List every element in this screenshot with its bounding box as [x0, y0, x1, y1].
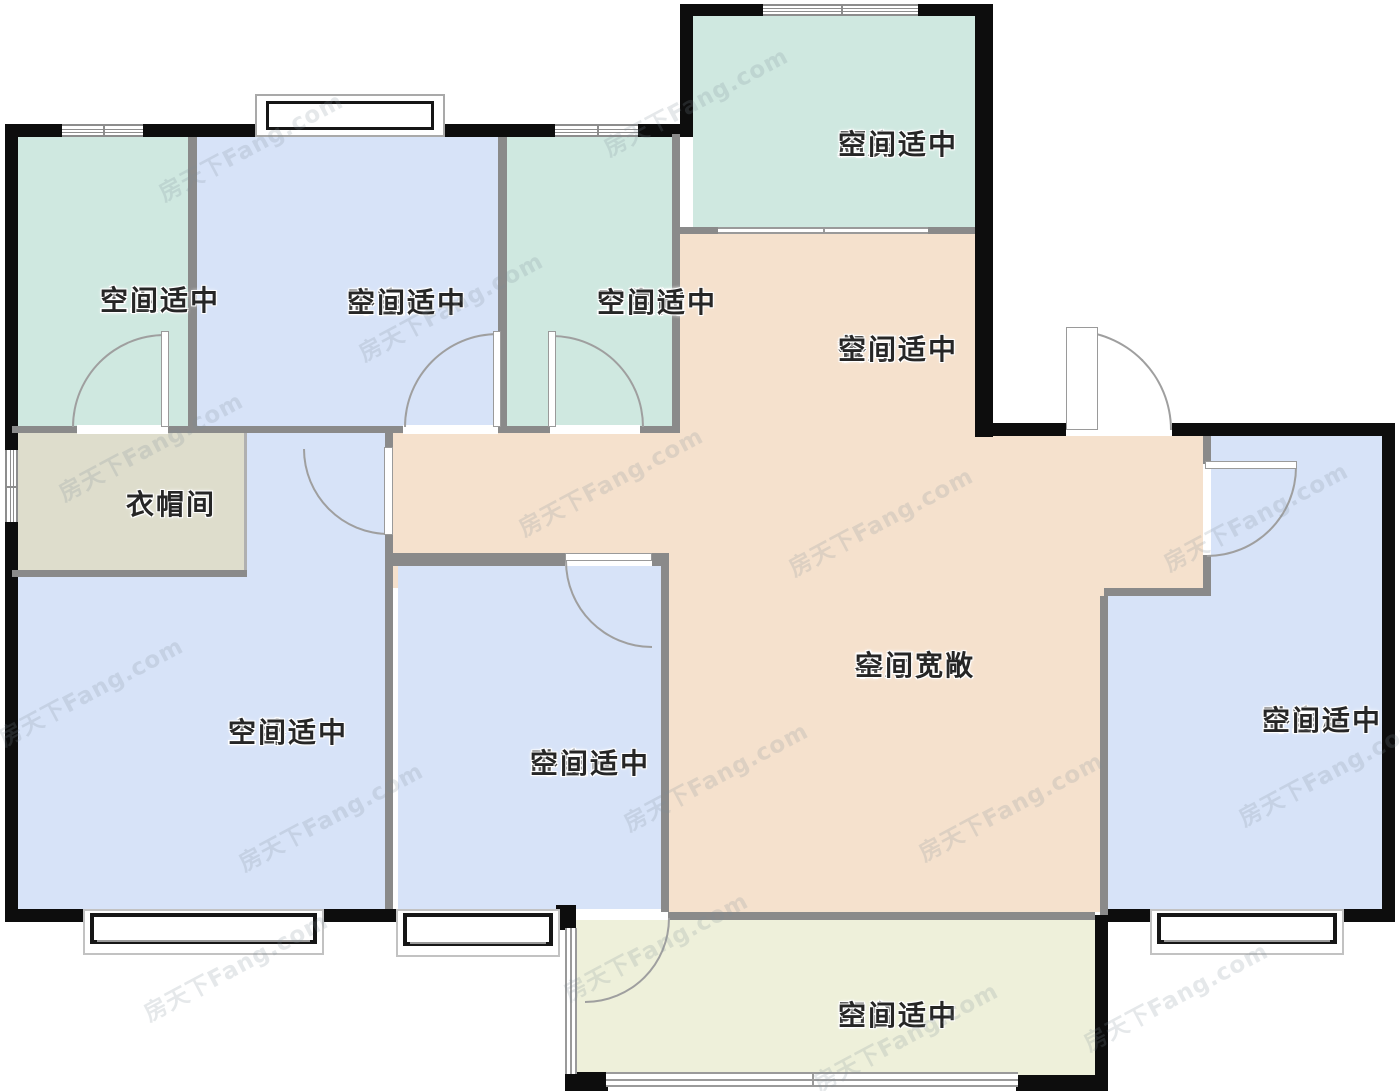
- wall-entry-right: [1172, 423, 1395, 436]
- wall-right: [1382, 423, 1395, 922]
- partition-kitchen-bottom-l: [676, 227, 718, 234]
- partition-cloakroom-bottom: [12, 570, 247, 577]
- partition-bedrooma-step-h: [1104, 588, 1211, 596]
- room-living: [669, 566, 1104, 912]
- wall-kitchen-top-1: [680, 4, 763, 16]
- door-leaf-hallway: [384, 447, 393, 535]
- room-note: 空间适中: [838, 334, 958, 366]
- wall-bottom-left-2: [322, 909, 398, 922]
- door-leaf-bedroom-b: [565, 553, 652, 561]
- window-master-bath: [62, 124, 143, 137]
- partition-bathroom-bottom-l: [507, 426, 550, 433]
- door-leaf-bedroom-c: [493, 331, 501, 427]
- room-dining: [680, 228, 975, 436]
- partition-cloakroom-right: [244, 433, 247, 570]
- window-master-bedroom: [83, 909, 324, 955]
- room-name: 衣帽间: [126, 489, 216, 521]
- partition-living-balcony: [668, 912, 1095, 920]
- window-cloakroom: [5, 450, 18, 522]
- balcony-glass-left: [565, 928, 577, 1074]
- wall-top-2: [143, 124, 257, 137]
- room-note: 空间适中: [100, 285, 220, 317]
- room-note: 空间适中: [228, 717, 348, 749]
- room-note: 空间适中: [1262, 705, 1382, 737]
- balcony-glass-bottom: [606, 1072, 1018, 1087]
- room-note: 空间适中: [347, 287, 467, 319]
- partition-living-bedrooma: [1100, 596, 1108, 915]
- wall-kitchen-right: [975, 4, 993, 437]
- wall-bottom-left-1: [5, 909, 85, 922]
- wall-entry-left: [993, 423, 1066, 436]
- partition-hall-right-bottom: [385, 533, 393, 566]
- wall-top-3: [443, 124, 555, 137]
- floorplan: 主卫 空间适中 卧室C 空间适中 卫生间 空间适中 厨房 空间适中 餐厅 空间适…: [0, 0, 1400, 1091]
- door-leaf-bedroom-a: [1205, 461, 1297, 469]
- window-bedroom-a: [1150, 909, 1344, 955]
- partition-bedrooma-left-top: [1203, 436, 1211, 464]
- wall-bottom-right-1: [1104, 909, 1152, 922]
- room-note: 空间适中: [838, 129, 958, 161]
- door-leaf-entry: [1066, 327, 1098, 430]
- partition-bedroomb-top-r: [652, 553, 669, 566]
- room-note: 空间适中: [838, 1000, 958, 1032]
- wall-left-upper: [5, 124, 18, 450]
- room-kitchen: [693, 16, 975, 228]
- room-note: 空间适中: [597, 287, 717, 319]
- partition-masterbath-bottom-r: [168, 426, 197, 433]
- partition-bedroomc-bottom: [197, 426, 403, 433]
- partition-bedroomb-top-l: [393, 553, 565, 566]
- wall-balcony-corner-bl: [565, 1072, 608, 1091]
- wall-top-1: [5, 124, 62, 137]
- wall-kitchen-left: [680, 4, 693, 134]
- partition-bathroom-bottom-r: [640, 426, 680, 433]
- partition-master-bedroomb: [385, 566, 393, 909]
- room-bedroom-a: [1108, 596, 1382, 909]
- wall-balcony-corner-br: [1016, 1075, 1108, 1091]
- door-leaf-bathroom: [548, 331, 556, 427]
- wall-left-lower: [5, 522, 18, 922]
- room-note: 空间宽敞: [855, 650, 975, 682]
- partition-bedroomb-living: [661, 566, 669, 912]
- room-note: 空间适中: [530, 748, 650, 780]
- door-leaf-master-bath: [161, 331, 169, 427]
- window-bedroom-b: [396, 909, 560, 957]
- bay-window-inner: [266, 101, 434, 130]
- window-bathroom: [555, 124, 638, 137]
- partition-bathroom-kitchen: [672, 134, 680, 433]
- wall-bottom-right-2: [1342, 909, 1395, 922]
- partition-masterbath-bottom-l: [12, 426, 77, 433]
- wall-balcony-right: [1095, 915, 1108, 1091]
- partition-kitchen-bottom-r: [928, 227, 975, 234]
- window-kitchen: [763, 4, 918, 16]
- kitchen-pass-through: [718, 227, 928, 234]
